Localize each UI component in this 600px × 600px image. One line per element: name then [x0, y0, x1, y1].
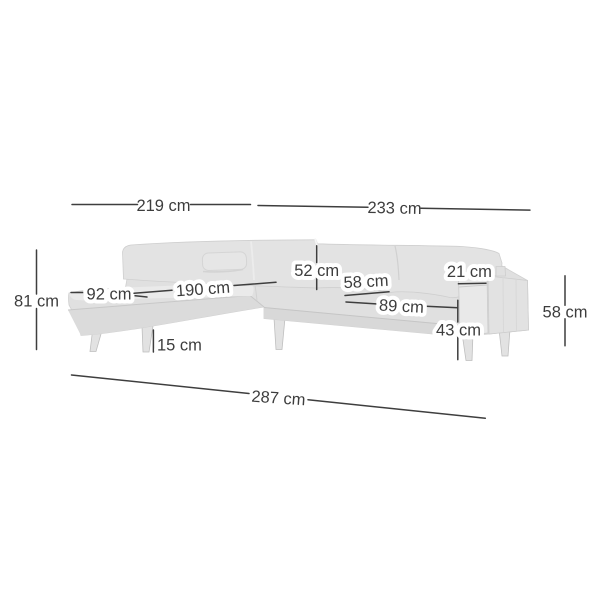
- svg-text:190 cm: 190 cm: [175, 279, 230, 301]
- svg-text:21 cm: 21 cm: [447, 263, 492, 281]
- svg-text:287 cm: 287 cm: [251, 388, 306, 410]
- svg-text:219 cm: 219 cm: [136, 197, 190, 215]
- svg-text:58 cm: 58 cm: [343, 272, 389, 292]
- svg-text:43 cm: 43 cm: [436, 321, 481, 339]
- svg-text:89 cm: 89 cm: [379, 297, 425, 317]
- svg-text:233 cm: 233 cm: [367, 199, 421, 218]
- svg-text:81 cm: 81 cm: [14, 293, 59, 311]
- svg-text:92 cm: 92 cm: [87, 285, 132, 303]
- svg-text:52 cm: 52 cm: [294, 262, 339, 280]
- svg-text:15 cm: 15 cm: [157, 336, 202, 354]
- svg-text:58 cm: 58 cm: [543, 303, 588, 321]
